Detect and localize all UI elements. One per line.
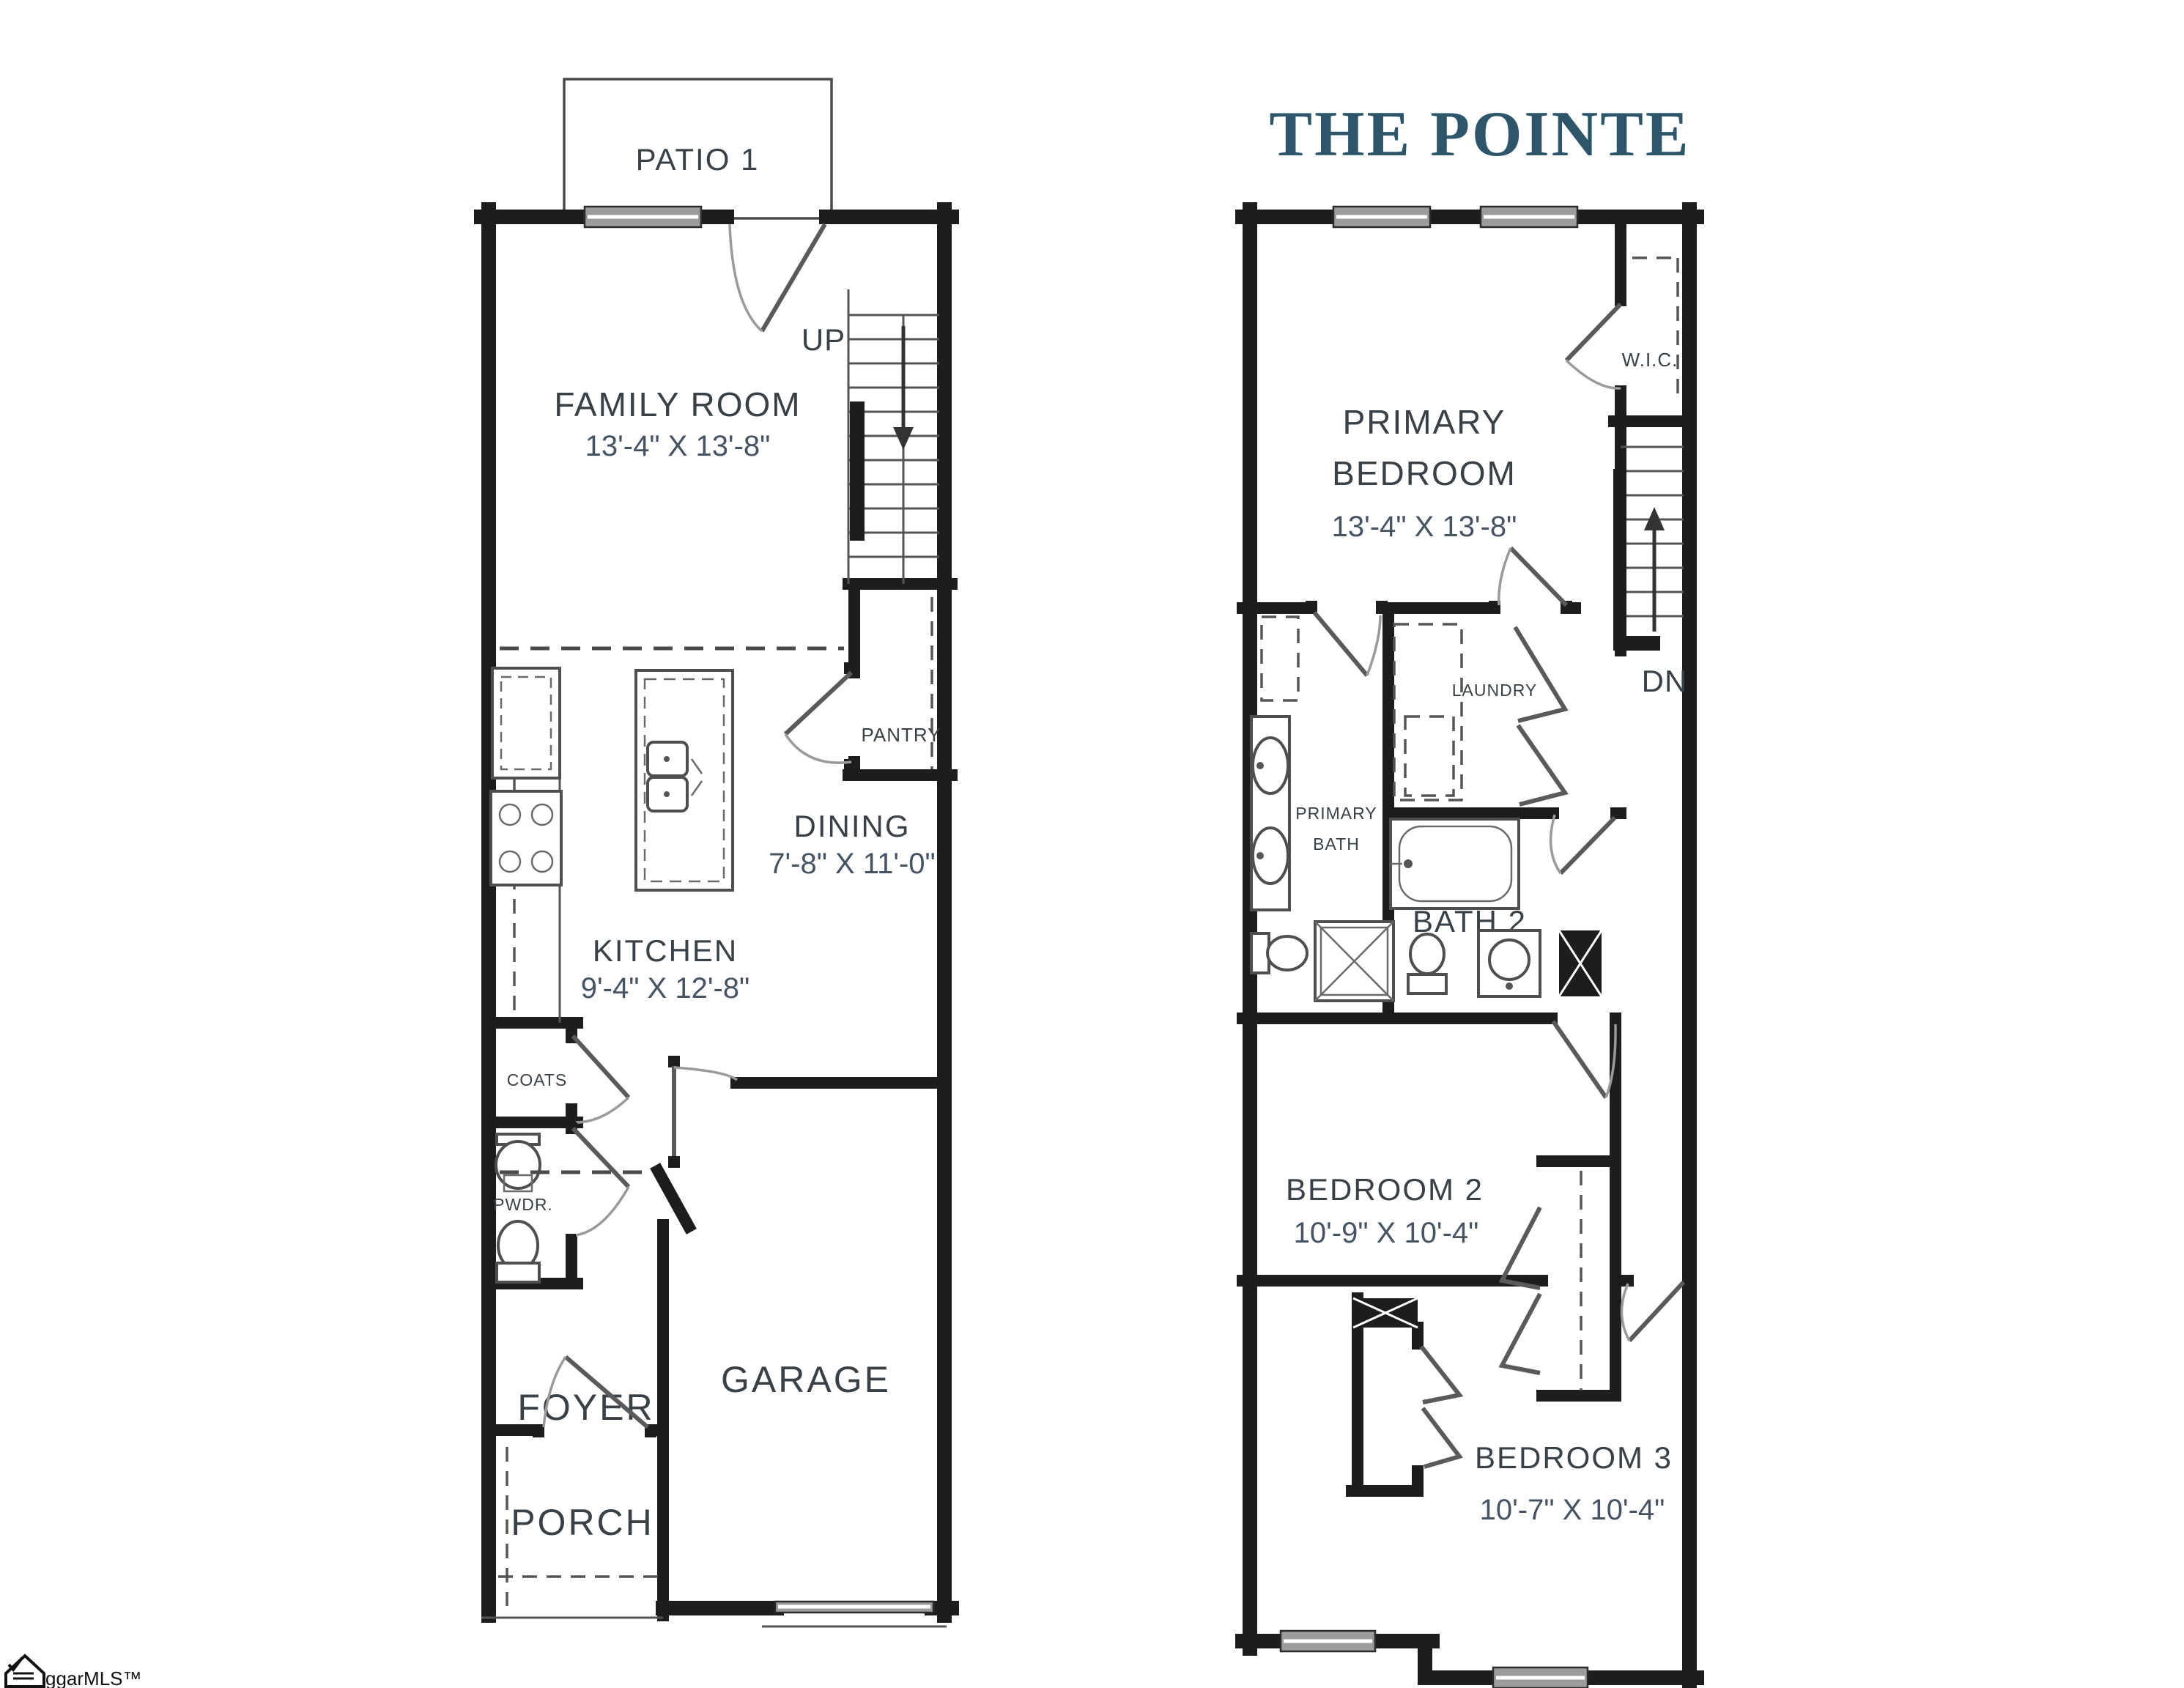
bathtub (1391, 819, 1519, 908)
powder-room: PWDR. (493, 1122, 629, 1282)
up-label: UP (802, 322, 845, 357)
bedroom3-dims: 10'-7" X 10'-4" (1480, 1494, 1665, 1526)
stairs-up: UP (802, 289, 939, 584)
stove (491, 791, 561, 885)
plan-title: THE POINTE (1269, 99, 1690, 170)
dn-label: DN (1642, 664, 1688, 698)
shower (1315, 922, 1393, 1001)
family-room-label: FAMILY ROOM (554, 385, 801, 423)
dining-dims: 7'-8" X 11'-0" (769, 848, 935, 880)
foyer-label: FOYER (517, 1387, 654, 1428)
primary-bedroom-line1: PRIMARY (1343, 403, 1506, 441)
patio-outline: PATIO 1 (564, 79, 832, 218)
patio-label: PATIO 1 (636, 142, 760, 177)
bedroom3-chase (1353, 1298, 1418, 1328)
refrigerator (492, 668, 560, 778)
primary-toilet-bowl (1267, 936, 1307, 970)
floor-plan-page: THE POINTE PATIO 1 (0, 0, 2184, 1688)
coats-label: COATS (507, 1070, 568, 1089)
bedroom2-dims: 10'-9" X 10'-4" (1294, 1217, 1479, 1249)
bath2-door (1547, 807, 1615, 873)
bedroom-2: BEDROOM 2 10'-9" X 10'-4" (1286, 1013, 1621, 1391)
primary-bedroom-door (1489, 548, 1572, 614)
mls-watermark: ggarMLS™ (6, 1656, 142, 1688)
first-floor-plan: PATIO 1 (481, 79, 952, 1626)
garage-door (762, 1602, 947, 1626)
porch: PORCH (498, 1447, 658, 1606)
garage: GARAGE (668, 1056, 891, 1400)
family-room: FAMILY ROOM 13'-4" X 13'-8" (500, 385, 844, 648)
primary-bedroom-dims: 13'-4" X 13'-8" (1332, 511, 1517, 543)
powder-label: PWDR. (493, 1195, 553, 1214)
wic-label: W.I.C. (1622, 349, 1678, 371)
primary-bath: PRIMARY BATH (1251, 717, 1393, 1001)
bath-2: BATH 2 (1391, 807, 1615, 996)
kitchen-island (636, 670, 733, 890)
mls-watermark-text: ggarMLS™ (45, 1667, 142, 1688)
bedroom3-door (1621, 1275, 1684, 1341)
primary-bedroom: PRIMARY BEDROOM 13'-4" X 13'-8" (1332, 403, 1517, 543)
pantry-label: PANTRY (861, 724, 941, 746)
bedroom3-closet-doors (1421, 1347, 1459, 1467)
mls-house-icon (6, 1656, 44, 1687)
bath2-toilet-tank (1408, 974, 1446, 993)
stairs-down: DN (1613, 447, 1687, 698)
family-room-dims: 13'-4" X 13'-8" (585, 430, 771, 462)
dining-label: DINING (794, 809, 911, 843)
laundry-label: LAUNDRY (1452, 681, 1538, 700)
laundry: LAUNDRY (1394, 624, 1565, 804)
garage-label: GARAGE (721, 1359, 891, 1400)
kitchen-label: KITCHEN (593, 933, 738, 968)
patio-door-swing (721, 211, 832, 331)
bedroom3-label: BEDROOM 3 (1475, 1440, 1673, 1475)
bath2-toilet-bowl (1410, 934, 1444, 974)
patio-window (585, 207, 701, 227)
pantry: PANTRY (785, 597, 941, 771)
primary-bedroom-line2: BEDROOM (1332, 454, 1517, 492)
bedroom2-label: BEDROOM 2 (1286, 1172, 1484, 1207)
chase (1559, 930, 1602, 996)
kitchen-dims: 9'-4" X 12'-8" (581, 972, 749, 1004)
primary-bath-door (1262, 601, 1388, 700)
second-floor-plan: PRIMARY BEDROOM 13'-4" X 13'-8" W.I.C. (1243, 207, 1697, 1688)
primary-bath-line2: BATH (1313, 834, 1360, 854)
porch-label: PORCH (511, 1502, 654, 1543)
bath2-sink (1478, 930, 1540, 996)
floor-plan-drawing: THE POINTE PATIO 1 (0, 0, 2184, 1688)
primary-bath-line1: PRIMARY (1295, 804, 1377, 823)
